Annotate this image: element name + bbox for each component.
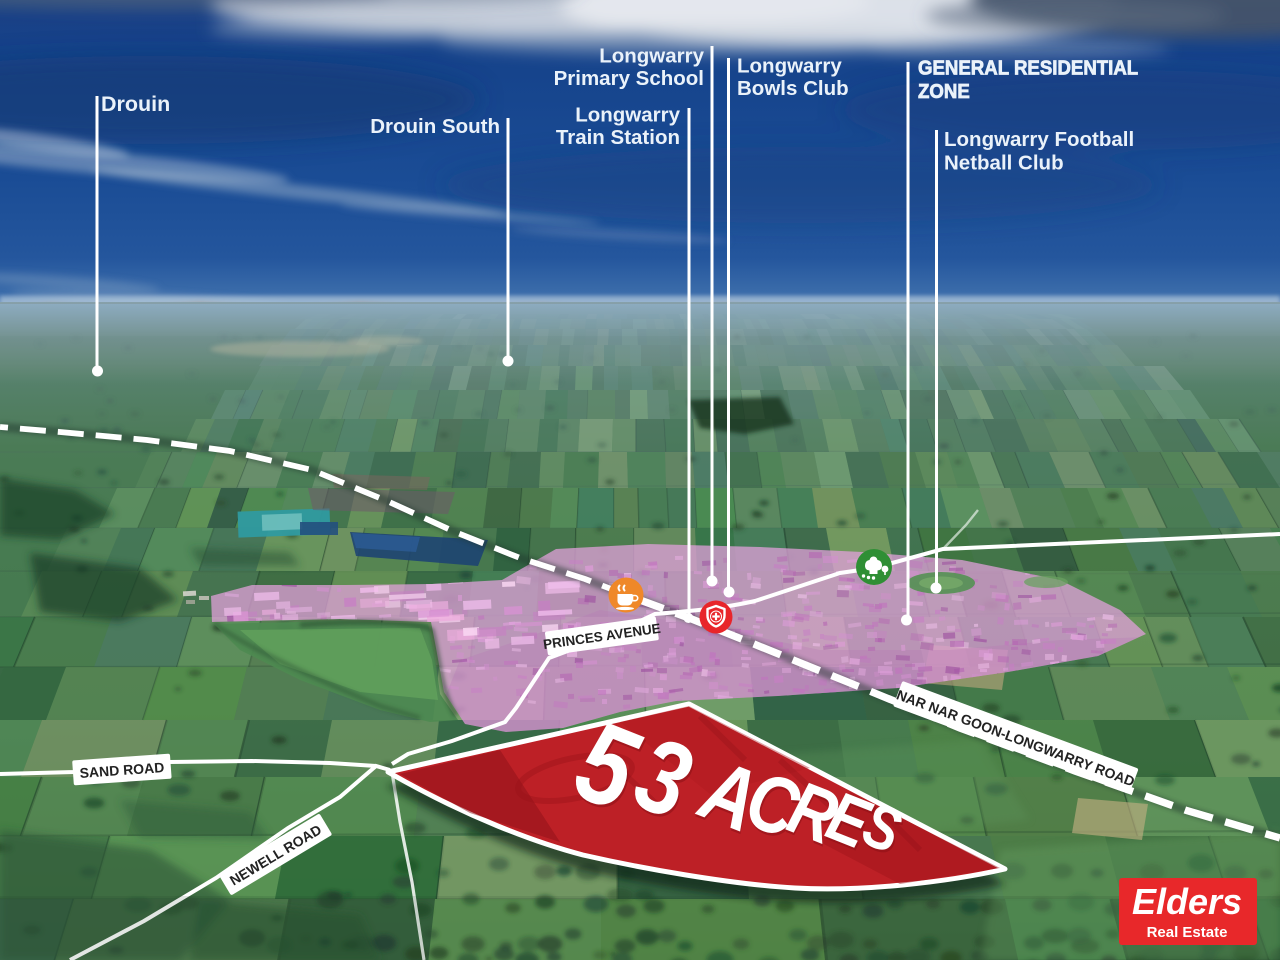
svg-text:ZONE: ZONE bbox=[918, 80, 970, 103]
svg-text:Longwarry Football: Longwarry Football bbox=[944, 128, 1134, 151]
svg-text:Longwarry: Longwarry bbox=[575, 104, 680, 127]
svg-text:GENERAL RESIDENTIAL: GENERAL RESIDENTIAL bbox=[918, 57, 1138, 80]
svg-text:Real Estate: Real Estate bbox=[1147, 924, 1228, 941]
svg-text:Primary School: Primary School bbox=[554, 67, 704, 90]
svg-text:Longwarry: Longwarry bbox=[737, 55, 842, 78]
svg-text:Train Station: Train Station bbox=[556, 126, 680, 149]
svg-text:Longwarry: Longwarry bbox=[599, 45, 704, 68]
svg-text:Elders: Elders bbox=[1132, 881, 1242, 922]
svg-text:Drouin: Drouin bbox=[101, 92, 170, 116]
svg-text:Bowls Club: Bowls Club bbox=[737, 77, 849, 100]
svg-text:Drouin South: Drouin South bbox=[370, 115, 500, 138]
svg-text:Netball Club: Netball Club bbox=[944, 152, 1064, 175]
